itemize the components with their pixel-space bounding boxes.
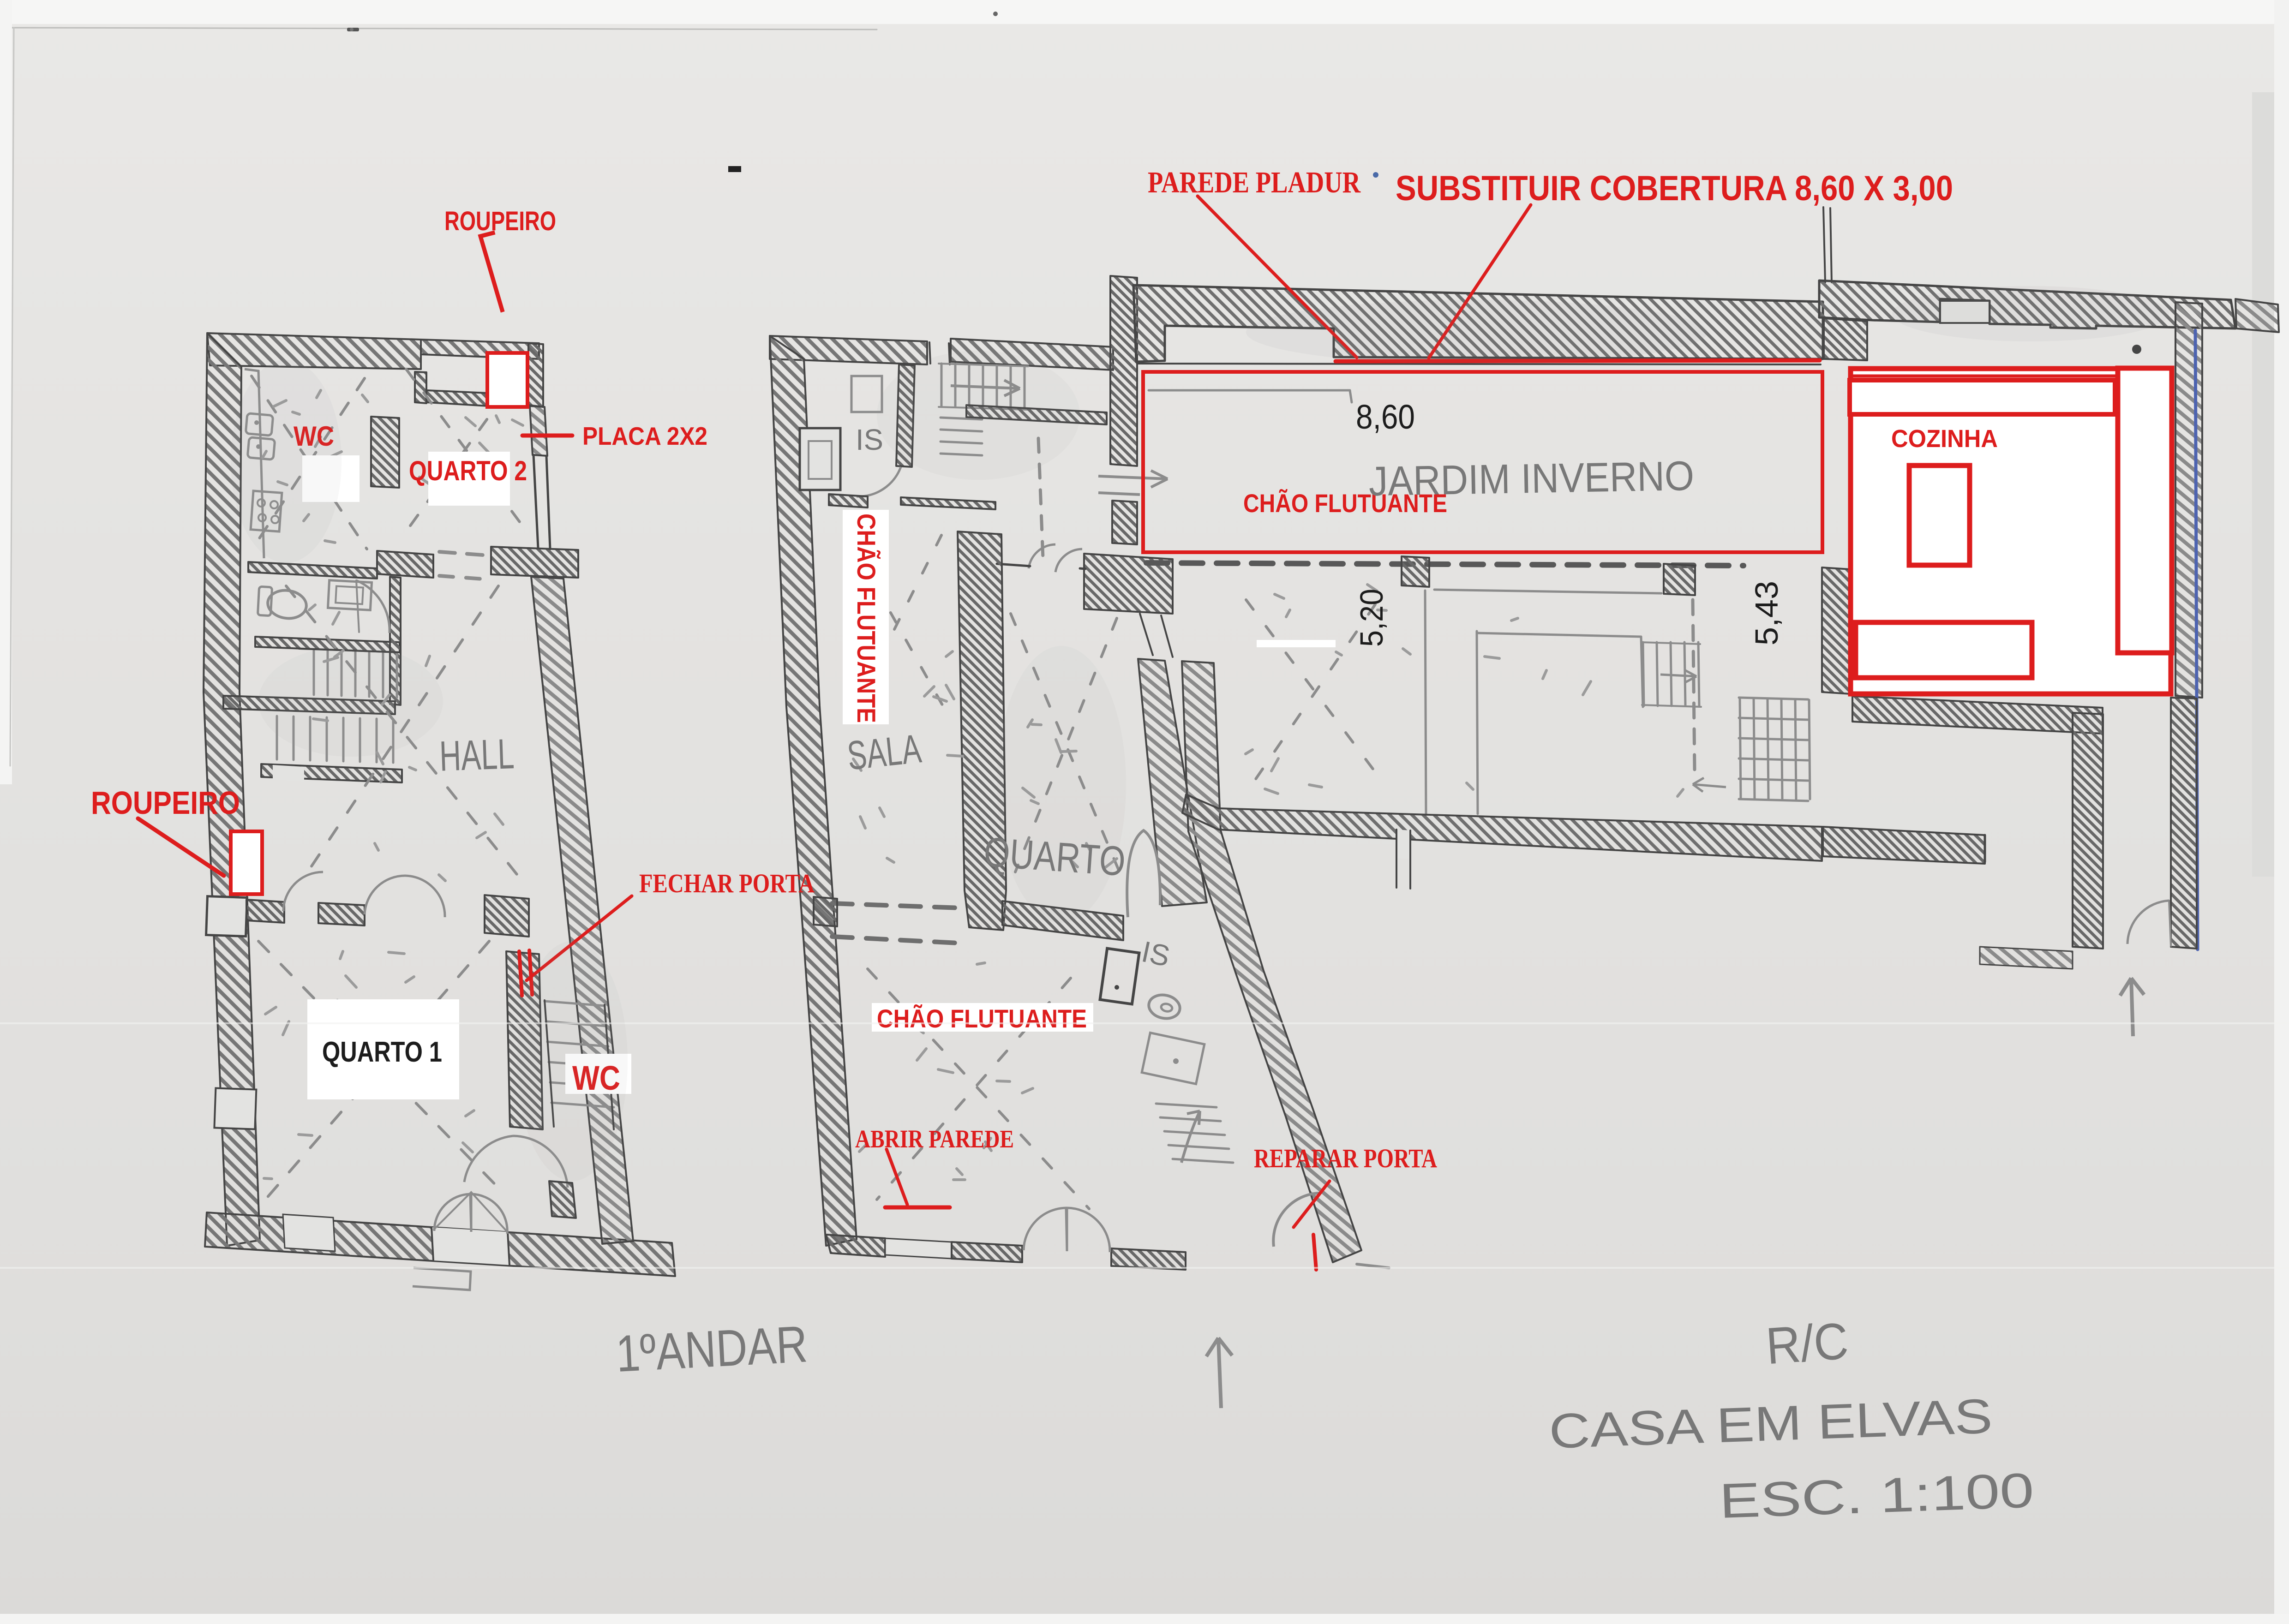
svg-text:ESC. 1:100: ESC. 1:100 [1719,1463,2035,1528]
svg-text:ROUPEIRO: ROUPEIRO [91,785,240,821]
svg-text:SUBSTITUIR COBERTURA 8,60 X 3,: SUBSTITUIR COBERTURA 8,60 X 3,00 [1396,169,1953,208]
svg-text:5,20: 5,20 [1354,589,1390,647]
svg-text:CHÃO FLUTUANTE: CHÃO FLUTUANTE [852,513,881,723]
svg-text:1ºANDAR: 1ºANDAR [615,1315,809,1383]
svg-text:QUARTO 1: QUARTO 1 [322,1036,442,1068]
svg-text:SALA: SALA [845,725,923,778]
svg-text:FECHAR PORTA: FECHAR PORTA [639,868,815,898]
svg-text:JARDIM INVERNO: JARDIM INVERNO [1368,453,1695,505]
svg-text:R/C: R/C [1764,1312,1850,1375]
svg-text:ABRIR PAREDE: ABRIR PAREDE [855,1125,1014,1153]
svg-text:HALL: HALL [439,730,515,780]
svg-text:REPARAR PORTA: REPARAR PORTA [1254,1143,1437,1173]
svg-text:CHÃO FLUTUANTE: CHÃO FLUTUANTE [877,1004,1087,1033]
svg-text:QUARTO 2: QUARTO 2 [409,455,527,486]
svg-text:8,60: 8,60 [1356,398,1415,436]
svg-text:ROUPEIRO: ROUPEIRO [444,206,556,236]
svg-text:5,43: 5,43 [1749,581,1785,645]
svg-text:PAREDE PLADUR: PAREDE PLADUR [1148,166,1361,199]
svg-text:PLACA 2X2: PLACA 2X2 [582,422,707,450]
svg-text:COZINHA: COZINHA [1891,425,1998,453]
